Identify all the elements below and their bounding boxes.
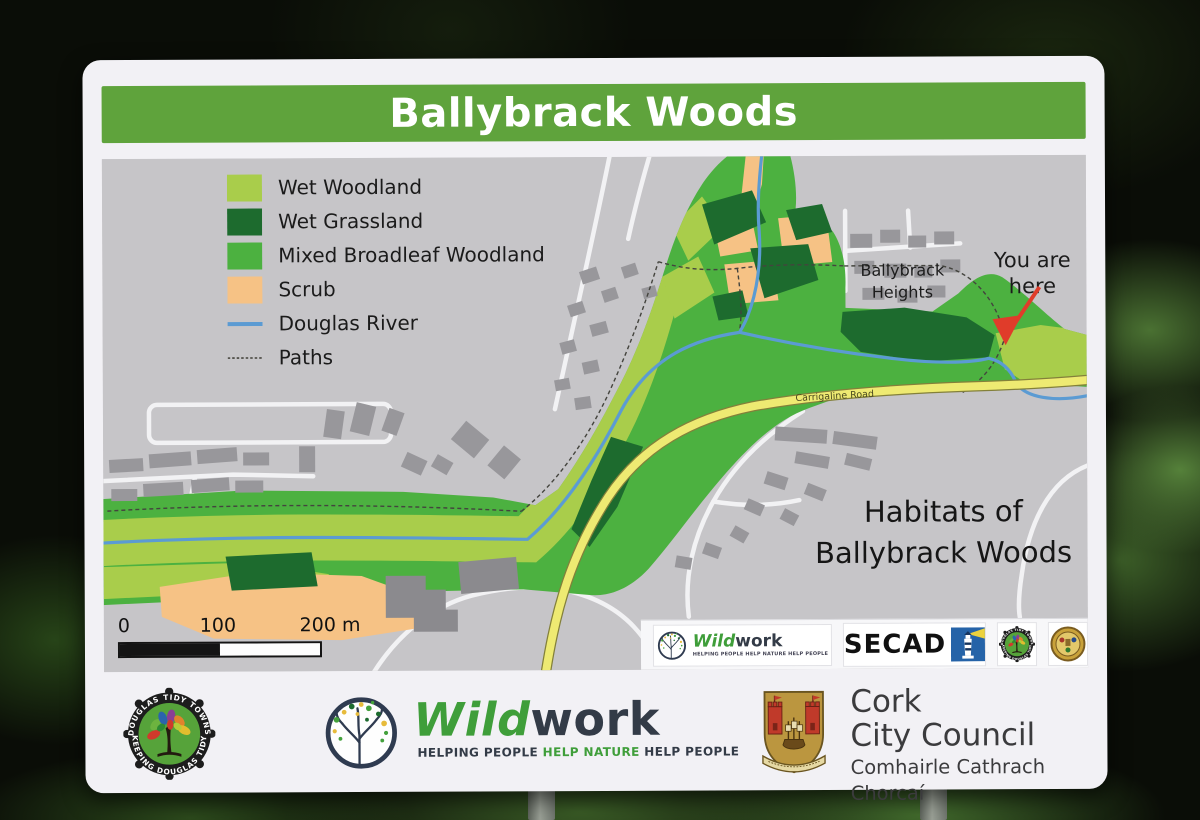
cork-city-council-logo: Cork City Council Comhairle Cathrach Cho… xyxy=(757,684,1108,808)
tidy-towns-mini-logo xyxy=(997,622,1037,666)
heritage-crest-logo xyxy=(1048,621,1088,665)
tagline-pre: HELPING PEOPLE xyxy=(417,745,542,760)
legend-swatch-path-line xyxy=(228,344,263,371)
council-name-irish: Comhairle Cathrach Chorcaí xyxy=(851,754,1108,807)
legend-label: Wet Woodland xyxy=(278,174,422,202)
scale-tick-0: 0 xyxy=(118,615,130,637)
wildwork-logo: Wildwork HELPING PEOPLE HELP NATURE HELP… xyxy=(323,693,739,771)
legend-label: Scrub xyxy=(278,276,335,303)
secad-wordmark: SECAD xyxy=(844,629,946,659)
secad-logo: SECAD xyxy=(843,622,986,667)
map-legend: Wet Woodland Wet Grassland Mixed Broadle… xyxy=(227,173,545,378)
wildwork-wordmark-wild: Wild xyxy=(413,692,530,747)
legend-swatch-river-line xyxy=(227,310,262,337)
estate-label-line2: Heights xyxy=(872,283,933,302)
title-banner: Ballybrack Woods xyxy=(102,82,1086,143)
legend-item-wet-woodland: Wet Woodland xyxy=(227,173,545,201)
legend-label: Wet Grassland xyxy=(278,208,423,236)
scale-tick-200: 200 m xyxy=(300,614,361,636)
legend-item-paths: Paths xyxy=(228,343,546,371)
scale-bar-graphic xyxy=(118,641,322,658)
scale-tick-100: 100 xyxy=(200,615,236,637)
tagline-post: HELP PEOPLE xyxy=(640,744,740,758)
caption-line1: Habitats of xyxy=(763,491,1088,534)
secad-lighthouse-icon xyxy=(951,627,985,661)
wildwork-tree-icon xyxy=(323,695,399,771)
legend-item-douglas-river: Douglas River xyxy=(227,309,545,337)
wildwork-mini-work: work xyxy=(735,631,782,651)
legend-label: Douglas River xyxy=(278,310,418,338)
wildwork-tagline: HELPING PEOPLE HELP NATURE HELP PEOPLE xyxy=(417,744,739,759)
legend-item-wet-grassland: Wet Grassland xyxy=(227,207,545,235)
sign-footer: Wildwork HELPING PEOPLE HELP NATURE HELP… xyxy=(85,668,1108,793)
wildwork-mini-tagline: HELPING PEOPLE HELP NATURE HELP PEOPLE xyxy=(693,651,828,657)
information-sign: Ballybrack Woods xyxy=(82,56,1107,793)
scale-bar: 0 100 200 m xyxy=(118,614,358,658)
wildwork-wordmark-work: work xyxy=(530,692,660,747)
wildwork-mini-logo: Wildwork HELPING PEOPLE HELP NATURE HELP… xyxy=(653,623,832,666)
estate-label-line1: Ballybrack xyxy=(860,260,945,279)
habitat-map-panel: Carrigaline Road Ballybrack Heights You … xyxy=(102,155,1088,672)
legend-label: Mixed Broadleaf Woodland xyxy=(278,241,545,269)
legend-swatch-mixed-broadleaf xyxy=(227,242,262,269)
photo-background-foliage: Ballybrack Woods xyxy=(0,0,1200,820)
douglas-tidy-towns-icon xyxy=(123,688,215,780)
map-caption: Habitats of Ballybrack Woods xyxy=(763,491,1088,575)
legend-item-scrub: Scrub xyxy=(227,275,545,303)
douglas-tidy-towns-logo xyxy=(123,688,215,784)
wildwork-tree-icon xyxy=(657,630,687,660)
legend-label: Paths xyxy=(279,344,333,371)
partner-logo-strip: Wildwork HELPING PEOPLE HELP NATURE HELP… xyxy=(641,618,1088,670)
legend-swatch-wet-grassland xyxy=(227,208,262,235)
legend-item-mixed-broadleaf: Mixed Broadleaf Woodland xyxy=(227,241,545,269)
council-name-line1: Cork xyxy=(850,684,1107,719)
wildwork-mini-wild: Wild xyxy=(693,631,736,651)
tagline-help-nature: HELP NATURE xyxy=(543,745,640,759)
cork-coat-of-arms xyxy=(757,685,830,779)
you-are-here-line1: You are xyxy=(993,248,1071,272)
sign-title: Ballybrack Woods xyxy=(389,89,798,137)
heritage-crest-icon xyxy=(1050,625,1086,661)
council-name-line2: City Council xyxy=(850,718,1107,753)
legend-swatch-wet-woodland xyxy=(227,174,262,201)
caption-line2: Ballybrack Woods xyxy=(763,532,1088,575)
tidy-towns-mini-icon xyxy=(999,626,1035,662)
legend-swatch-scrub xyxy=(227,276,262,303)
